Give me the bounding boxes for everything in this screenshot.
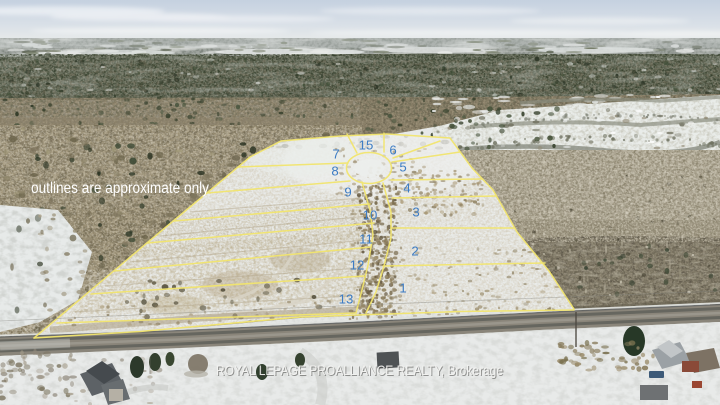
- svg-text:13: 13: [339, 292, 354, 307]
- svg-text:5: 5: [399, 160, 406, 175]
- svg-text:9: 9: [344, 185, 351, 200]
- svg-text:2: 2: [411, 244, 418, 259]
- svg-text:15: 15: [359, 138, 374, 153]
- svg-text:8: 8: [331, 164, 338, 179]
- svg-text:3: 3: [412, 205, 419, 220]
- svg-text:1: 1: [399, 281, 406, 296]
- svg-text:outlines are approximate only: outlines are approximate only: [31, 180, 209, 197]
- svg-text:11: 11: [359, 232, 373, 247]
- svg-text:6: 6: [389, 143, 396, 158]
- svg-text:4: 4: [403, 181, 410, 196]
- svg-text:12: 12: [350, 258, 365, 273]
- svg-text:7: 7: [332, 147, 339, 162]
- svg-text:ROYAL LEPAGE PROALLIANCE REALT: ROYAL LEPAGE PROALLIANCE REALTY, Brokera…: [216, 362, 503, 378]
- svg-text:10: 10: [363, 208, 378, 223]
